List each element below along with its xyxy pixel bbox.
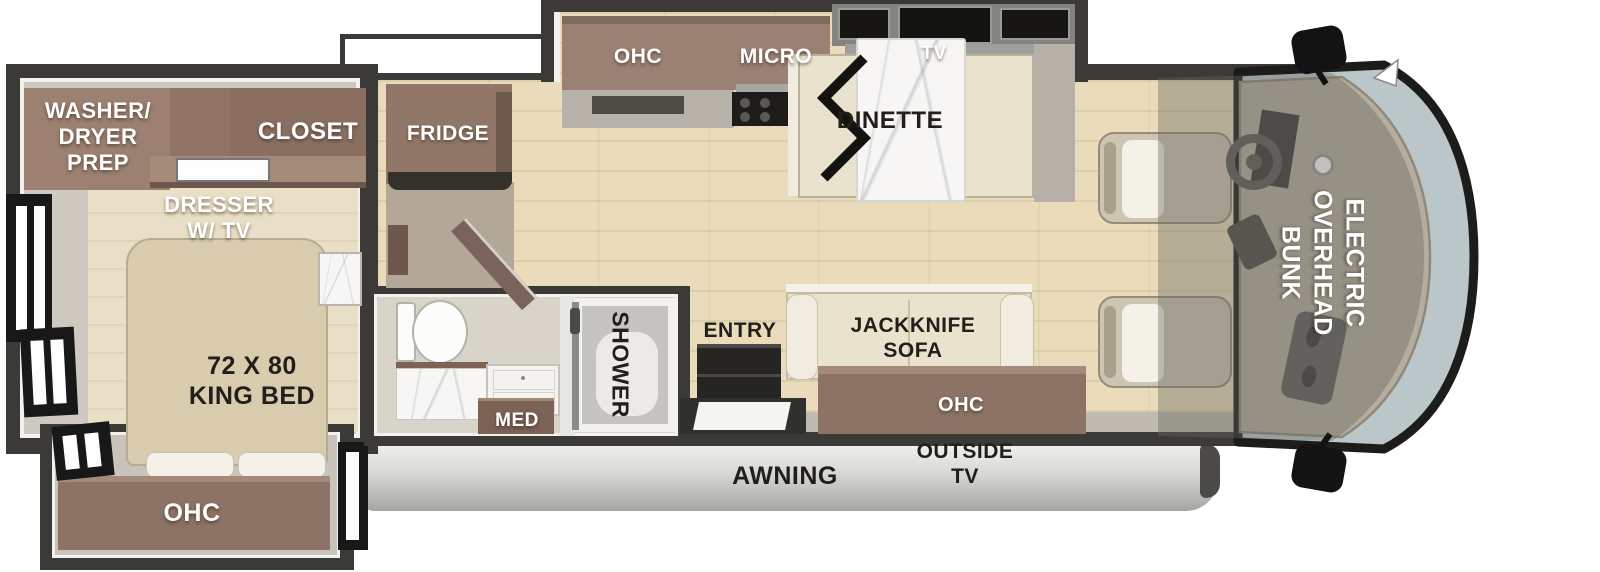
entry-steps [697, 344, 781, 400]
bed-pillow-left [146, 452, 234, 478]
label-entry: ENTRY [694, 319, 786, 344]
label-dinette-tv: TV [906, 43, 962, 65]
bedroom-window-left-lower [20, 327, 79, 418]
dash-speaker [1312, 154, 1334, 176]
dinette-bench-right [962, 54, 1034, 198]
galley-slide-wall-right [1075, 0, 1088, 82]
label-kitchen-ohc: OHC [596, 45, 680, 70]
entry-mat [693, 402, 791, 430]
label-shower: SHOWER [606, 303, 633, 427]
label-awning: AWNING [707, 462, 863, 492]
steering-hub [1246, 154, 1262, 170]
passenger-seat [1098, 296, 1232, 388]
bed-pillow-right [238, 452, 326, 478]
label-med: MED [482, 410, 552, 432]
driver-seat [1098, 132, 1232, 224]
dresser-tv [176, 158, 270, 182]
cooktop [732, 92, 796, 126]
label-micro: MICRO [728, 45, 824, 70]
label-washer-dryer-prep: WASHER/ DRYER PREP [20, 98, 176, 176]
galley-slide-wall-left [541, 0, 554, 82]
bath-counter [396, 368, 490, 420]
label-dinette: DINETTE [828, 107, 952, 135]
slide-right-interior [1034, 44, 1075, 202]
label-fridge: FRIDGE [388, 122, 508, 147]
door-post [388, 225, 408, 275]
label-closet: CLOSET [236, 118, 380, 146]
rv-floorplan: WASHER/ DRYER PREP CLOSET DRESSER W/ TV … [0, 0, 1600, 572]
fridge-shadow [388, 172, 512, 190]
label-jackknife-sofa: JACKKNIFE SOFA [838, 314, 988, 364]
sofa-arm-left [786, 294, 818, 380]
slide-inner-trim [554, 12, 560, 82]
awning-end-cap [1200, 444, 1220, 498]
toilet-bowl [412, 300, 468, 364]
shower-door-handle [570, 308, 580, 334]
slideout-window-right [338, 442, 368, 550]
bedroom-window-left-upper [6, 194, 52, 342]
label-king-bed: 72 X 80 KING BED [150, 352, 354, 411]
kitchen-sink-inset [592, 96, 684, 114]
bedroom-nightstand [318, 252, 362, 306]
side-mirror-bottom [1290, 442, 1349, 494]
label-sofa-ohc: OHC [916, 394, 1006, 418]
label-bedroom-ohc: OHC [130, 499, 254, 529]
mirror-arm-bottom [1320, 434, 1330, 448]
label-outside-tv: OUTSIDE TV [898, 440, 1032, 490]
label-dresser-tv: DRESSER W/ TV [139, 192, 299, 244]
label-electric-overhead-bunk: ELECTRIC OVERHEAD BUNK [1273, 176, 1371, 351]
slideout-window-left [51, 421, 114, 481]
